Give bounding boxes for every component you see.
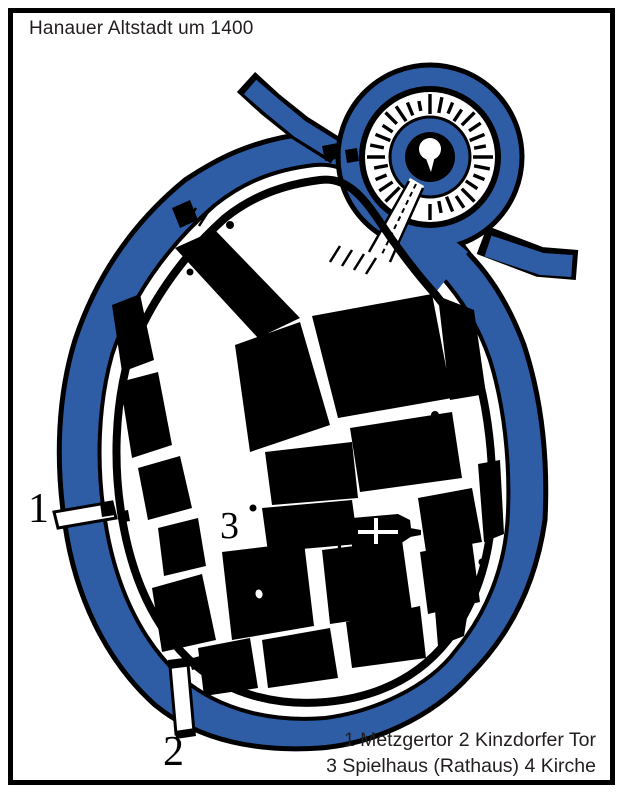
channel-east [482, 240, 577, 266]
marker-2: 2 [163, 729, 184, 775]
legend-line-1: 1 Metzgertor 2 Kinzdorfer Tor [326, 728, 596, 753]
marker-3: 3 [220, 505, 239, 547]
town-map: 1 2 3 4 [0, 0, 623, 796]
marker-4: 4 [326, 516, 345, 558]
legend: 1 Metzgertor 2 Kinzdorfer Tor 3 Spielhau… [326, 728, 596, 779]
map-page: 1 2 3 4 Hanauer Altstadt um 1400 1 Metzg… [0, 0, 623, 796]
legend-line-2: 3 Spielhaus (Rathaus) 4 Kirche [326, 754, 596, 779]
map-title: Hanauer Altstadt um 1400 [29, 18, 254, 40]
marker-1: 1 [28, 486, 49, 532]
